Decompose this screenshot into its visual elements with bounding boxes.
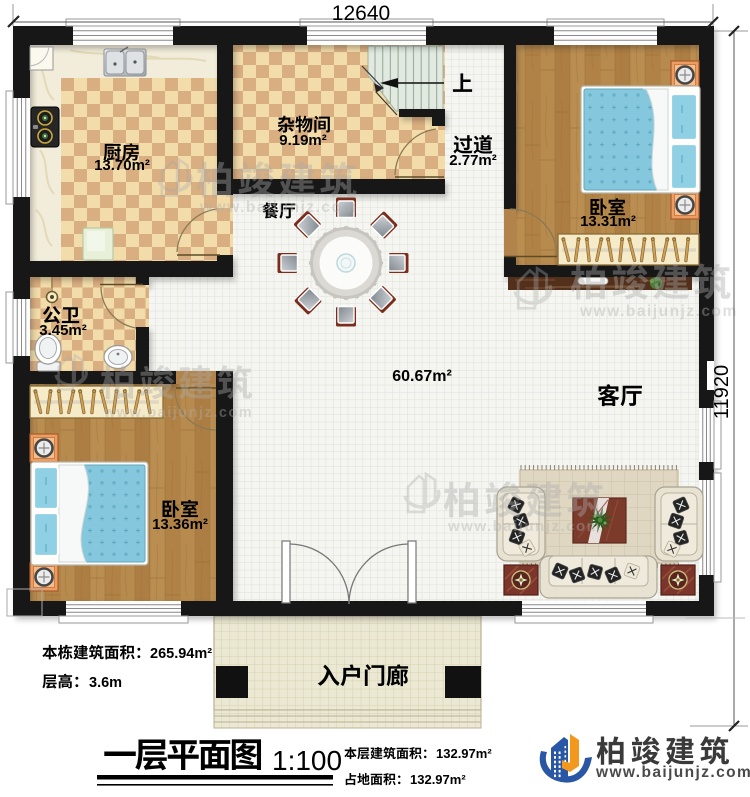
- svg-text:9.19m²: 9.19m²: [279, 132, 327, 149]
- svg-text:13.36m²: 13.36m²: [152, 516, 208, 533]
- svg-text:2.77m²: 2.77m²: [449, 152, 497, 169]
- svg-text:60.67m²: 60.67m²: [392, 368, 452, 385]
- svg-text:1:100: 1:100: [272, 745, 342, 776]
- svg-text:www.baijunjz.com: www.baijunjz.com: [595, 764, 750, 781]
- svg-text:www.baijunjz.com: www.baijunjz.com: [199, 199, 358, 216]
- svg-text:www.baijunjz.com: www.baijunjz.com: [447, 518, 601, 535]
- svg-text:3.45m²: 3.45m²: [39, 322, 87, 339]
- svg-text:13.31m²: 13.31m²: [580, 213, 636, 230]
- svg-text:www.baijunjz.com: www.baijunjz.com: [103, 405, 253, 421]
- svg-text:12640: 12640: [332, 2, 390, 25]
- svg-text:3.6m: 3.6m: [89, 675, 122, 691]
- svg-text:11920: 11920: [711, 365, 733, 419]
- svg-text:132.97m²: 132.97m²: [436, 746, 492, 761]
- svg-text:13.70m²: 13.70m²: [94, 157, 150, 174]
- svg-text:132.97m²: 132.97m²: [410, 772, 466, 787]
- svg-text:www.baijunjz.com: www.baijunjz.com: [579, 303, 738, 320]
- svg-text:265.94m²: 265.94m²: [150, 646, 212, 662]
